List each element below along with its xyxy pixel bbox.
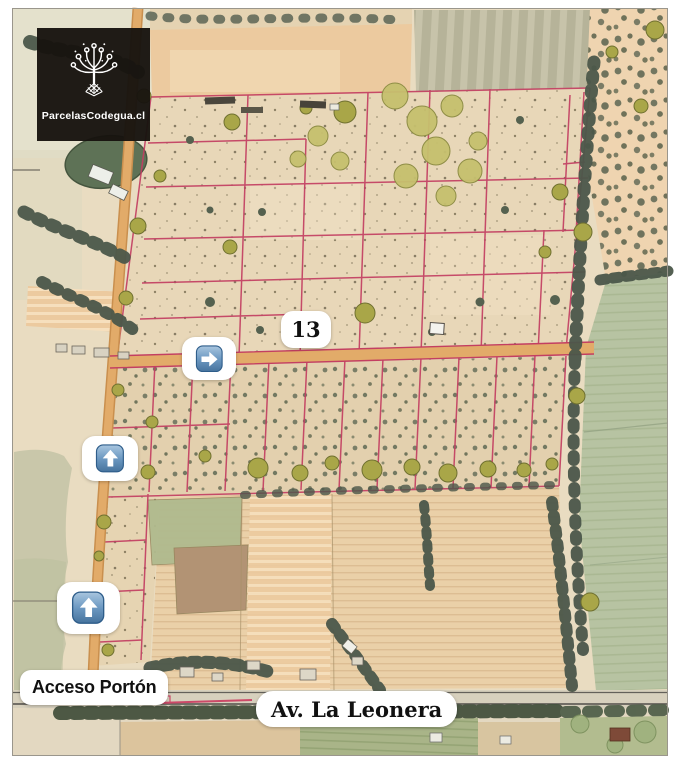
brand-logo: ParcelasCodegua.cl	[37, 28, 150, 141]
arrow-up-marker	[57, 582, 120, 634]
parcel-13-label: 13	[281, 311, 331, 348]
brand-name: ParcelasCodegua.cl	[42, 110, 145, 122]
av-la-leonera-label: Av. La Leonera	[256, 691, 457, 727]
acceso-porton-label: Acceso Portón	[20, 670, 168, 705]
arrow-right-icon	[192, 345, 227, 373]
parcel-map-page: ParcelasCodegua.cl 13 Acceso Portón Av. …	[0, 0, 680, 770]
arrow-up-marker	[82, 436, 138, 481]
arrow-right-marker	[182, 337, 236, 380]
arrow-up-icon	[68, 591, 108, 624]
arrow-up-icon	[92, 444, 128, 473]
ornamental-tree-icon	[61, 38, 127, 104]
